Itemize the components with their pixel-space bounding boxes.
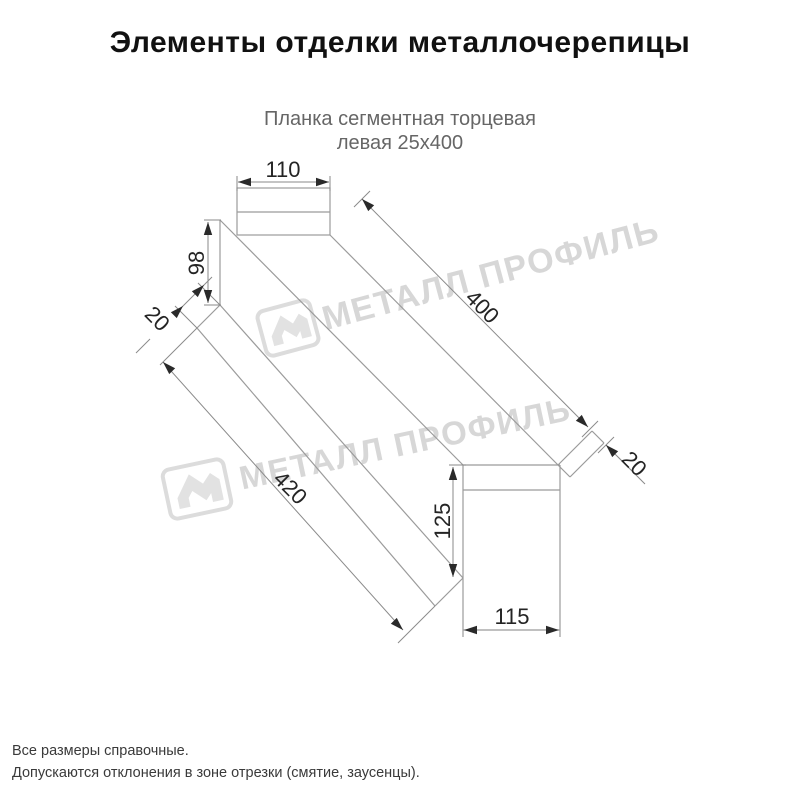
end-hem-edge: [592, 431, 604, 443]
metal-profil-logo-icon: [256, 299, 320, 357]
watermark-row-2: МЕТАЛЛ ПРОФИЛЬ: [161, 385, 575, 520]
dim-top-width-label: 110: [265, 157, 300, 182]
dim-face-height-label: 125: [430, 503, 455, 540]
footer-notes: Все размеры справочные. Допускаются откл…: [12, 740, 420, 784]
footer-note-line2: Допускаются отклонения в зоне отрезки (с…: [12, 762, 420, 784]
diagram-canvas: МЕТАЛЛ ПРОФИЛЬ МЕТАЛЛ ПРОФИЛЬ: [0, 0, 800, 800]
dim-end-height-label: 98: [184, 251, 209, 275]
hem-bottom-edge: [197, 328, 435, 606]
footer-note-line1: Все размеры справочные.: [12, 740, 420, 762]
strip-ridge-edge: [220, 220, 463, 465]
hem-near-edge: [435, 578, 463, 606]
dim-hem-right-label: 20: [617, 446, 652, 481]
hem-far-edge: [197, 305, 220, 328]
page: Элементы отделки металлочерепицы Планка …: [0, 0, 800, 800]
dim-base-width-label: 115: [494, 604, 529, 629]
watermark-row-1: МЕТАЛЛ ПРОФИЛЬ: [256, 206, 665, 357]
metal-profil-logo-icon: [161, 458, 232, 520]
